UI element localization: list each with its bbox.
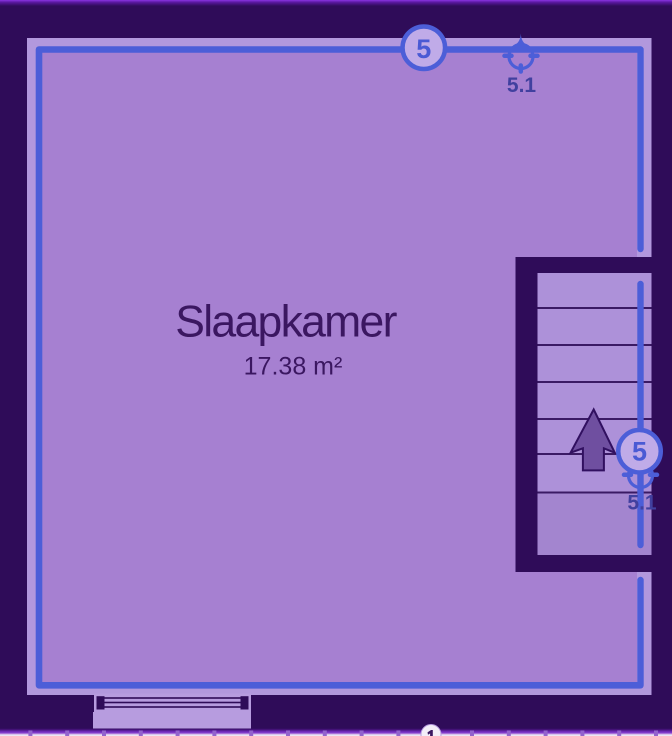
svg-text:5.1: 5.1 — [627, 492, 657, 515]
svg-text:5: 5 — [416, 34, 431, 64]
svg-text:5: 5 — [632, 437, 647, 467]
svg-text:17.38 m²: 17.38 m² — [244, 353, 343, 381]
svg-text:5.1: 5.1 — [507, 74, 537, 97]
svg-text:Slaapkamer: Slaapkamer — [175, 298, 397, 347]
